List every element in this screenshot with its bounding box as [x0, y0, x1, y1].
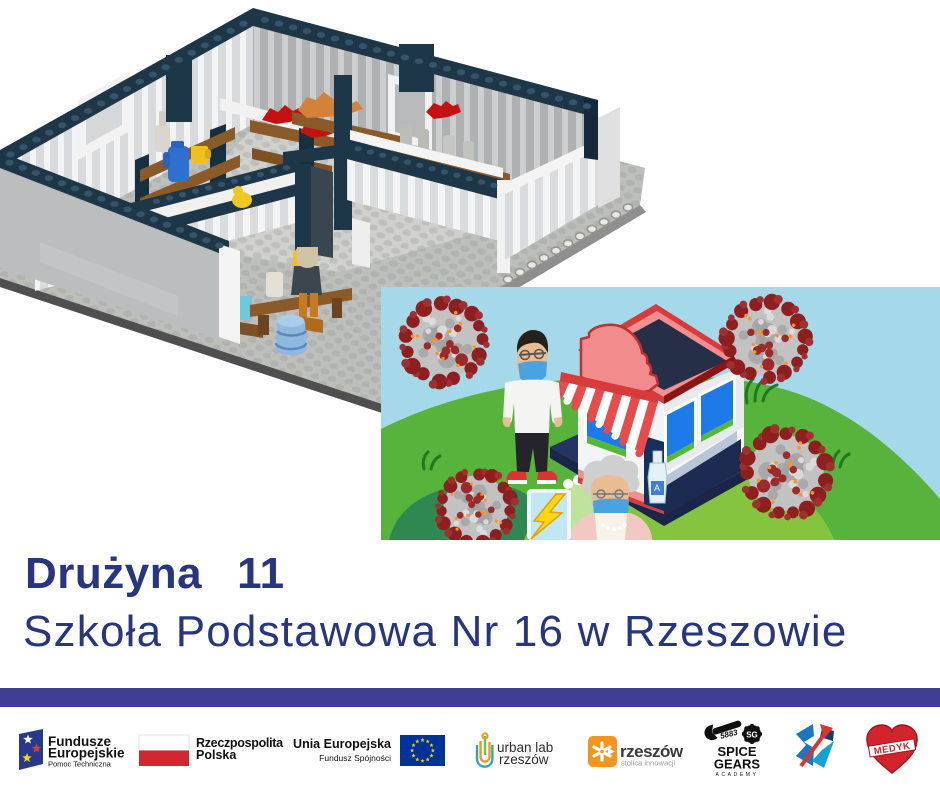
- svg-text:GEARS: GEARS: [714, 757, 761, 772]
- svg-text:stolica innowacji: stolica innowacji: [621, 759, 676, 768]
- svg-text:rzeszów: rzeszów: [499, 752, 549, 767]
- svg-text:SG: SG: [746, 731, 758, 740]
- svg-text:Unia Europejska: Unia Europejska: [293, 737, 392, 751]
- svg-text:A: A: [654, 483, 660, 493]
- svg-text:Fundusz Spójności: Fundusz Spójności: [319, 753, 391, 763]
- svg-text:Pomoc Techniczna: Pomoc Techniczna: [48, 760, 112, 769]
- svg-text:ACADEMY: ACADEMY: [716, 772, 759, 778]
- svg-text:®: ®: [913, 762, 918, 769]
- svg-text:Europejskie: Europejskie: [48, 746, 125, 761]
- svg-text:Polska: Polska: [196, 748, 237, 762]
